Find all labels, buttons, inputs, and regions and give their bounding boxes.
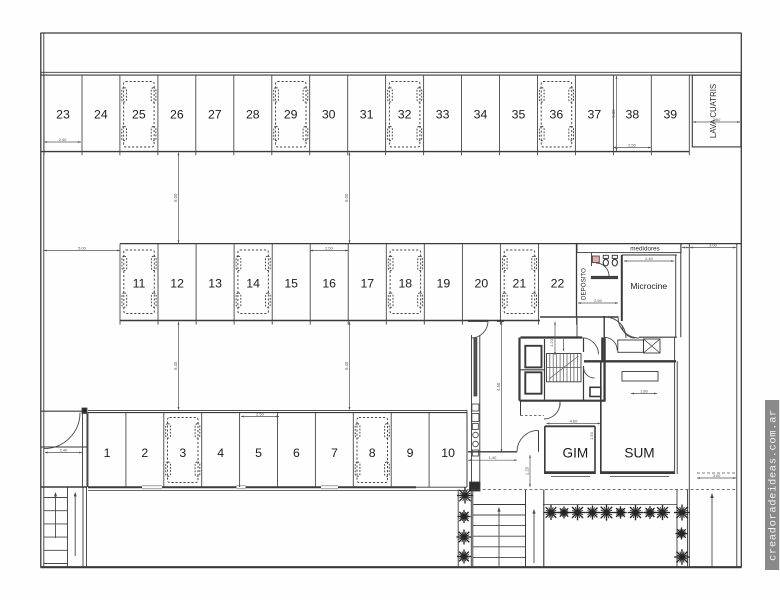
svg-text:2.50: 2.50	[628, 142, 637, 147]
svg-text:34: 34	[474, 108, 488, 122]
svg-text:19: 19	[437, 277, 451, 291]
svg-text:29: 29	[284, 108, 298, 122]
svg-text:10: 10	[441, 446, 455, 460]
svg-text:6.40: 6.40	[173, 361, 178, 370]
svg-text:23: 23	[56, 108, 70, 122]
svg-text:35: 35	[512, 108, 526, 122]
svg-text:6.00: 6.00	[173, 193, 178, 202]
svg-text:32: 32	[398, 108, 412, 122]
svg-text:6.40: 6.40	[344, 361, 349, 370]
svg-text:31: 31	[360, 108, 374, 122]
svg-text:GIM: GIM	[563, 446, 589, 461]
svg-text:1: 1	[104, 446, 111, 460]
svg-text:33: 33	[436, 108, 450, 122]
svg-text:1.80: 1.80	[640, 388, 649, 393]
svg-text:14: 14	[246, 277, 260, 291]
svg-text:4.60: 4.60	[570, 418, 579, 423]
svg-text:2.40: 2.40	[59, 137, 68, 142]
svg-text:2.60: 2.60	[713, 117, 722, 122]
svg-text:7: 7	[331, 446, 338, 460]
svg-text:37: 37	[588, 108, 602, 122]
svg-text:18: 18	[398, 277, 412, 291]
svg-text:1.20: 1.20	[525, 466, 530, 475]
svg-text:3: 3	[179, 446, 186, 460]
svg-text:20: 20	[475, 277, 489, 291]
svg-text:2: 2	[141, 446, 148, 460]
svg-text:DEPÓSITO: DEPÓSITO	[581, 268, 588, 300]
svg-text:36: 36	[550, 108, 564, 122]
svg-text:17: 17	[360, 277, 374, 291]
svg-text:2.40: 2.40	[60, 447, 69, 452]
svg-text:Microcine: Microcine	[630, 281, 667, 291]
svg-text:creadoradeideas.com.ar: creadoradeideas.com.ar	[767, 409, 779, 561]
svg-text:4.50: 4.50	[496, 382, 501, 391]
svg-text:9: 9	[407, 446, 414, 460]
svg-text:11: 11	[133, 277, 146, 291]
svg-text:30: 30	[322, 108, 336, 122]
svg-text:medidores: medidores	[630, 246, 659, 253]
svg-text:2.50: 2.50	[256, 411, 265, 416]
svg-text:6.00: 6.00	[344, 193, 349, 202]
svg-text:2.50: 2.50	[594, 298, 603, 303]
svg-text:SUM: SUM	[624, 446, 654, 461]
svg-text:1.40: 1.40	[489, 455, 498, 460]
svg-text:39: 39	[663, 108, 677, 122]
svg-text:2.50: 2.50	[325, 245, 334, 250]
svg-text:15: 15	[284, 277, 298, 291]
svg-text:3.00: 3.00	[713, 473, 722, 478]
svg-text:2.40: 2.40	[645, 256, 654, 261]
svg-text:38: 38	[626, 108, 640, 122]
svg-text:6: 6	[293, 446, 300, 460]
svg-text:5.00: 5.00	[611, 109, 616, 118]
svg-text:8: 8	[369, 446, 376, 460]
svg-text:22: 22	[551, 277, 565, 291]
svg-text:3.00: 3.00	[709, 242, 718, 247]
svg-text:27: 27	[208, 108, 222, 122]
svg-text:21: 21	[513, 277, 527, 291]
svg-text:5: 5	[255, 446, 262, 460]
svg-text:4: 4	[217, 446, 224, 460]
svg-text:28: 28	[246, 108, 260, 122]
svg-text:1.20: 1.20	[549, 338, 554, 347]
svg-text:26: 26	[170, 108, 184, 122]
svg-text:13: 13	[208, 277, 222, 291]
svg-text:1.50: 1.50	[589, 431, 594, 440]
svg-text:24: 24	[94, 108, 108, 122]
svg-text:12: 12	[170, 277, 184, 291]
svg-text:16: 16	[322, 277, 336, 291]
svg-text:5.00: 5.00	[78, 245, 87, 250]
svg-text:25: 25	[132, 108, 146, 122]
svg-text:LAVA CUATRIS: LAVA CUATRIS	[709, 84, 718, 138]
